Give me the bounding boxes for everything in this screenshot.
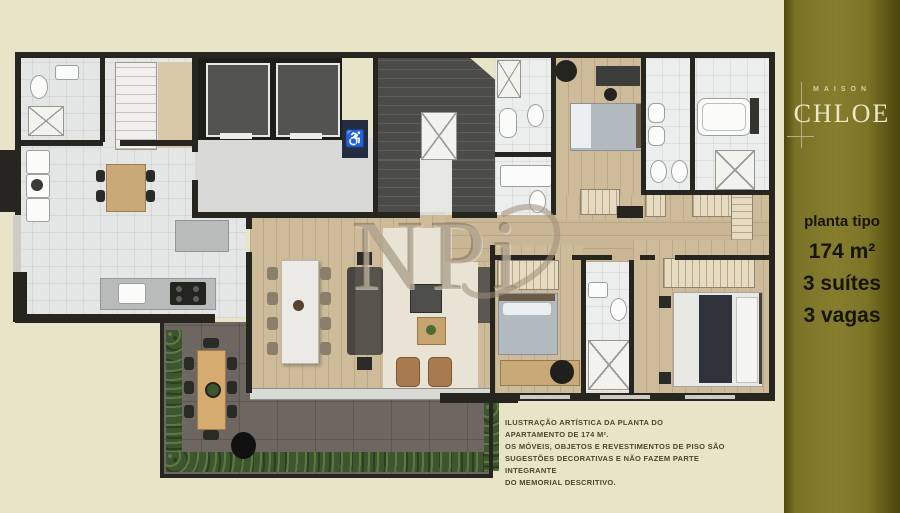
window-left [13,215,21,272]
wall-suite1-right [641,57,646,195]
parking-value: 3 vagas [784,304,900,328]
closet-box [715,150,755,190]
toilet [610,298,627,321]
disclaimer-line: SUGESTÕES DECORATIVAS E NÃO FAZEM PARTE … [505,453,725,477]
dining-table [281,260,319,364]
bidet [671,160,688,183]
terrace-chair [227,357,237,370]
wall-lobby-bottom [192,212,420,218]
terrace-planter-pot [231,432,256,459]
bathtub [697,98,751,136]
terrace-centerpiece [205,382,221,398]
terrace-chair [227,405,237,418]
suite2-chair [550,360,574,384]
disclaimer-line: DO MEMORIAL DESCRITIVO. [505,477,725,489]
wall-lobby-v [192,57,198,152]
cooktop [170,282,206,305]
wall-stair-left [373,57,378,215]
dining-chair [320,317,331,330]
suites-value: 3 suítes [784,272,900,296]
page-background: ♿ [0,0,900,513]
dining-chair [267,317,278,330]
laundry-sink [26,150,50,174]
side-table [357,357,372,370]
terrace-chair [203,338,219,348]
staff-chair [96,170,105,182]
wall-top [15,52,775,58]
wall-right [769,52,775,393]
disclaimer-line: OS MÓVEIS, OBJETOS E REVESTIMENTOS DE PI… [505,441,725,453]
nightstand [659,372,671,384]
wall-corridor-bottom [640,255,655,260]
double-sink [648,103,665,123]
bathtub-deck [750,98,759,134]
kitchen-upper-cabinets [175,220,229,252]
double-sink [648,126,665,146]
nightstand [659,296,671,308]
armchair [396,357,420,387]
dining-chair [320,292,331,305]
shower-box [588,340,630,390]
staff-chair [146,170,155,182]
window-bottom [600,395,650,399]
closet-shelves [115,62,157,150]
service-sink [55,65,79,80]
terrace-chair [203,430,219,440]
terrace-chair [184,381,194,394]
dining-chair [320,267,331,280]
bath-sink [499,108,517,138]
wall-bath-div [690,57,695,195]
suite1-desk [596,66,640,86]
bathtub-inner [702,103,746,131]
terrace-border-left [160,322,164,478]
master-wardrobe [663,258,755,288]
suite1-bed [570,103,644,151]
area-value: 174 m² [784,240,900,264]
suite1-bed-sheet [571,104,591,148]
master-bed [673,292,763,387]
terrace-chair [184,357,194,370]
coffee-table-plant [426,325,436,335]
elevator-shaft-2 [276,63,340,137]
wall-left-block [0,150,21,212]
staff-chair [96,190,105,202]
wall-kitchen-living [246,215,252,229]
kitchen-sink [118,283,146,304]
wall-service-h [15,140,103,146]
stairs-lower-left [377,160,420,215]
shower-tray [500,165,552,187]
brand-maison-label: MAISON [784,86,900,93]
terrace-hedge-left [166,330,182,470]
npi-watermark-swoosh [462,196,582,311]
terrace-border-right [489,400,493,478]
wardrobe [645,192,666,217]
suite1-pouf [555,60,577,82]
laundry-cabinet [26,198,50,222]
wardrobe [692,192,732,217]
wall-master-left [629,260,634,393]
master-duvet [699,295,732,383]
suite1-chair [604,88,617,101]
toilet [650,160,667,183]
sofa [347,267,383,355]
terrace-chair [227,381,237,394]
wall-service-v [100,57,105,142]
stair-landing [421,112,457,160]
terrace-hedge-bottom [166,452,488,472]
wall [617,206,643,218]
logo-crop-mark-horizontal [787,136,814,137]
shower-box [497,60,521,98]
wall-bath-split [495,152,552,157]
master-headboard [759,293,762,384]
dining-centerpiece [293,300,304,311]
elevator-shaft-1 [206,63,270,137]
disclaimer-line: ILUSTRAÇÃO ARTÍSTICA DA PLANTA DO APARTA… [505,417,725,441]
armchair [428,357,452,387]
dining-chair [267,342,278,355]
staff-chair [146,190,155,202]
window-bottom [685,395,735,399]
toilet [527,104,544,127]
tv-console [410,284,442,313]
service-shower [28,106,64,136]
dining-chair [267,267,278,280]
master-pillows [736,297,758,383]
dining-chair [267,292,278,305]
wall-bath-bottom [645,190,775,195]
side-table [357,252,372,265]
wall-lobby-v [192,180,198,215]
plan-type-label: planta tipo [784,213,900,230]
elevator-door-1 [220,133,252,139]
bath-sink [588,282,608,298]
window-bottom [520,395,570,399]
brand-name: CHLOE [784,99,900,129]
terrace-chair [184,405,194,418]
disclaimer-text: ILUSTRAÇÃO ARTÍSTICA DA PLANTA DO APARTA… [505,417,725,489]
service-toilet [30,75,48,99]
wardrobe [580,189,620,215]
terrace-border-bottom [160,474,493,478]
dining-chair [320,342,331,355]
wall-bath-col [551,57,556,215]
wheelchair-icon: ♿ [345,129,365,149]
brand-panel: MAISON CHLOE planta tipo 174 m² 3 suítes… [784,0,900,513]
wall-service-h [120,140,195,146]
wall-corridor-bottom [675,255,775,260]
washer-drum [31,179,43,191]
wall-kitchen-living [246,252,252,393]
entry-hall [420,158,452,212]
accessibility-sign: ♿ [342,120,368,158]
staff-table [106,164,146,212]
elevator-door-2 [290,133,322,139]
wall-kitchen-bottom [15,314,215,323]
